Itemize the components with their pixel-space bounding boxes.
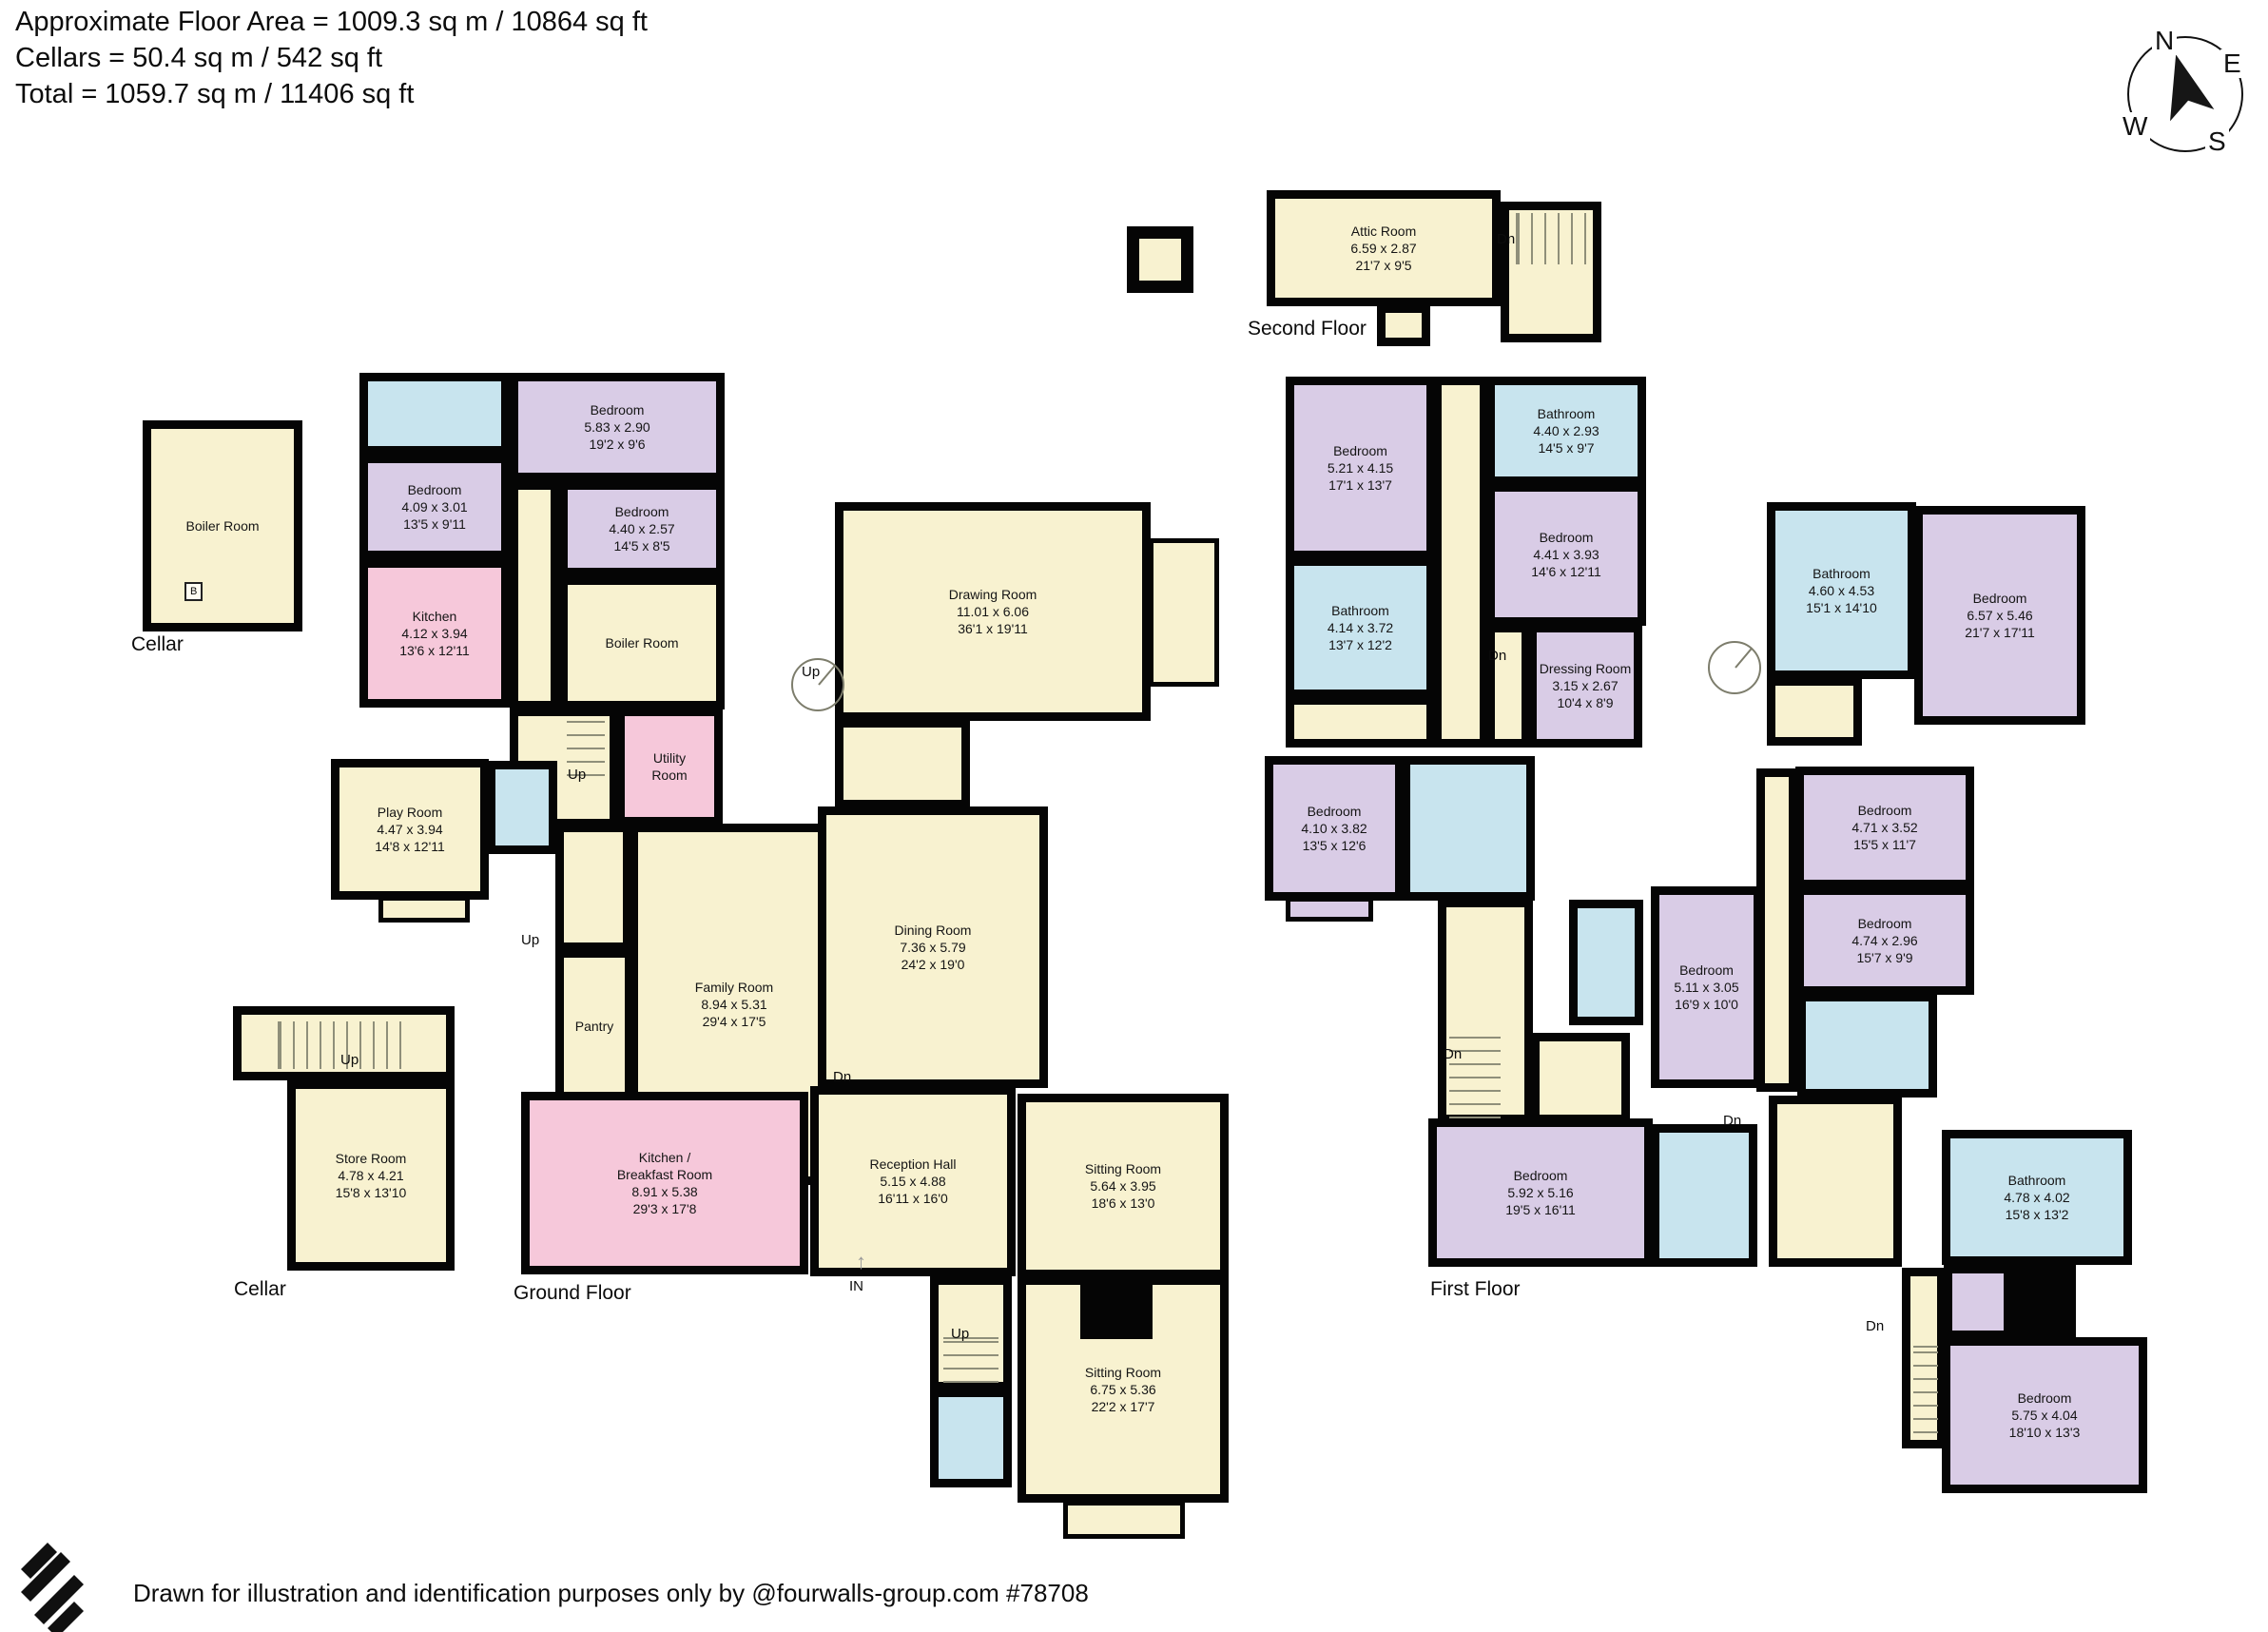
- room-gf-wc-north: [487, 761, 557, 854]
- room-label-ff-bedroom-592: Bedroom5.92 x 5.1619'5 x 16'11: [1505, 1167, 1576, 1218]
- compass-rose: N E S W: [2123, 29, 2251, 164]
- room-label-cellar1-boiler-room: Boiler Room: [185, 517, 259, 534]
- room-gf-hall-west: [555, 824, 631, 951]
- chimney-block: [1080, 1276, 1153, 1339]
- stair-direction-label: Dn: [1497, 231, 1515, 247]
- room-gf-dining-room: Dining Room7.36 x 5.7924'2 x 19'0: [818, 806, 1048, 1088]
- entrance-arrow-icon: ↑: [856, 1250, 866, 1274]
- room-label-gf-reception-hall: Reception Hall5.15 x 4.8816'11 x 16'0: [869, 1156, 956, 1207]
- room-gf-bathroom-nw: [359, 373, 510, 455]
- room-gf-bay-play: [378, 896, 470, 923]
- room-label-gf-utility-room: UtilityRoom: [651, 749, 687, 784]
- room-label-gf-pantry: Pantry: [575, 1018, 613, 1035]
- room-gf-play-room: Play Room4.47 x 3.9414'8 x 12'11: [331, 759, 489, 900]
- room-gf-reception-hall: Reception Hall5.15 x 4.8816'11 x 16'0: [810, 1086, 1016, 1276]
- boiler-appliance-label: B: [184, 582, 203, 601]
- room-label-ff-bathroom-440: Bathroom4.40 x 2.9314'5 x 9'7: [1533, 405, 1599, 457]
- stair-direction-label: Up: [568, 767, 586, 783]
- room-ff-bedroom-471: Bedroom4.71 x 3.5215'5 x 11'7: [1795, 767, 1974, 888]
- room-ff-bedroom-410: Bedroom4.10 x 3.8213'5 x 12'6: [1265, 756, 1404, 901]
- room-label-ff-bedroom-521: Bedroom5.21 x 4.1517'1 x 13'7: [1328, 442, 1393, 494]
- total-floor-area-line: Approximate Floor Area = 1009.3 sq m / 1…: [15, 4, 648, 40]
- room-label-gf-sitting-room-564: Sitting Room5.64 x 3.9518'6 x 13'0: [1085, 1160, 1161, 1212]
- chimney-block: [2011, 1265, 2076, 1341]
- room-label-ff-bedroom-441: Bedroom4.41 x 3.9314'6 x 12'11: [1531, 529, 1601, 580]
- entrance-label: IN: [849, 1278, 863, 1294]
- room-cellar1-boiler-room: Boiler Room: [143, 420, 302, 631]
- room-gf-hall-center: [835, 719, 970, 808]
- room-sf-chimney-tab: [1377, 304, 1430, 346]
- stair-direction-label: Up: [802, 664, 820, 680]
- room-ff-bathroom-460: Bathroom4.60 x 4.5315'1 x 14'10: [1767, 502, 1916, 679]
- room-ff-ensuite-nw: [1402, 756, 1535, 901]
- room-label-cellar2-store-room: Store Room4.78 x 4.2115'8 x 13'10: [336, 1150, 407, 1201]
- total-area-line: Total = 1059.7 sq m / 11406 sq ft: [15, 76, 648, 112]
- room-label-gf-bedroom-440: Bedroom4.40 x 2.5714'5 x 8'5: [609, 503, 674, 554]
- room-ff-hall-center2: [1531, 1033, 1630, 1123]
- stair-direction-label: Up: [521, 932, 539, 948]
- room-label-ff-bedroom-474: Bedroom4.74 x 2.9615'7 x 9'9: [1851, 915, 1917, 966]
- room-label-ff-bedroom-575: Bedroom5.75 x 4.0418'10 x 13'3: [2009, 1389, 2081, 1441]
- room-gf-kitchen-breakfast-room: Kitchen /Breakfast Room8.91 x 5.3829'3 x…: [521, 1092, 808, 1274]
- stair-direction-label: Up: [951, 1326, 969, 1342]
- floor-caption-second-floor: Second Floor: [1248, 318, 1367, 340]
- room-ff-hall-strip: [1756, 768, 1797, 1092]
- room-ff-hall-se2: [1944, 1265, 2012, 1339]
- stair-direction-label: Up: [340, 1052, 359, 1068]
- room-label-gf-drawing-room: Drawing Room11.01 x 6.0636'1 x 19'11: [949, 586, 1037, 637]
- room-gf-hall-north: [510, 481, 559, 709]
- room-gf-bedroom-409: Bedroom4.09 x 3.0113'5 x 9'11: [359, 455, 510, 559]
- room-ff-dressing-room: Dressing Room3.15 x 2.6710'4 x 8'9: [1528, 624, 1642, 748]
- room-label-gf-boiler-room: Boiler Room: [605, 634, 678, 651]
- room-gf-bedroom-583: Bedroom5.83 x 2.9019'2 x 9'6: [510, 373, 725, 481]
- room-ff-bay-bedroom-410: [1286, 897, 1373, 922]
- room-gf-wc-south: [930, 1389, 1012, 1487]
- staircase-icon: [1516, 213, 1592, 264]
- spiral-staircase-icon: [1708, 641, 1761, 694]
- room-label-gf-dining-room: Dining Room7.36 x 5.7924'2 x 19'0: [895, 922, 972, 973]
- staircase-icon: [1913, 1346, 1938, 1433]
- room-sf-attic-room: Attic Room6.59 x 2.8721'7 x 9'5: [1267, 190, 1501, 306]
- room-label-sf-attic-room: Attic Room6.59 x 2.8721'7 x 9'5: [1350, 223, 1416, 274]
- floor-caption-cellar: Cellar: [131, 633, 184, 656]
- room-label-ff-bedroom-471: Bedroom4.71 x 3.5215'5 x 11'7: [1851, 802, 1917, 853]
- room-label-gf-play-room: Play Room4.47 x 3.9414'8 x 12'11: [375, 804, 445, 855]
- room-gf-utility-room: UtilityRoom: [616, 708, 723, 826]
- compass-west-label: W: [2120, 112, 2150, 141]
- room-ff-hall-nw: [1286, 696, 1435, 748]
- compass-east-label: E: [2220, 49, 2244, 78]
- room-label-ff-bathroom-478: Bathroom4.78 x 4.0215'8 x 13'2: [2004, 1172, 2069, 1223]
- staircase-icon: [943, 1337, 998, 1383]
- room-label-gf-sitting-room-675: Sitting Room6.75 x 5.3622'2 x 17'7: [1085, 1364, 1161, 1415]
- stair-direction-label: Dn: [1488, 648, 1506, 664]
- room-ff-bedroom-657: Bedroom6.57 x 5.4621'7 x 17'11: [1914, 506, 2085, 725]
- room-gf-bay-sitting: [1063, 1501, 1185, 1539]
- floor-caption-first-floor: First Floor: [1430, 1278, 1521, 1301]
- stair-direction-label: Dn: [1866, 1318, 1884, 1334]
- stair-direction-label: Dn: [1723, 1113, 1741, 1129]
- room-gf-drawing-room: Drawing Room11.01 x 6.0636'1 x 19'11: [835, 502, 1151, 721]
- room-ff-landing-se: [1769, 1096, 1902, 1267]
- floor-caption-ground-floor: Ground Floor: [514, 1282, 631, 1305]
- room-ff-bathroom-mid: [1569, 900, 1643, 1025]
- floor-plan: Approximate Floor Area = 1009.3 sq m / 1…: [0, 0, 2268, 1632]
- room-label-ff-bathroom-414: Bathroom4.14 x 3.7213'7 x 12'2: [1328, 602, 1393, 653]
- room-ff-bedroom-592: Bedroom5.92 x 5.1619'5 x 16'11: [1428, 1118, 1653, 1267]
- room-ff-bedroom-474: Bedroom4.74 x 2.9615'7 x 9'9: [1795, 886, 1974, 995]
- room-gf-bedroom-440: Bedroom4.40 x 2.5714'5 x 8'5: [559, 481, 725, 576]
- room-label-ff-bathroom-460: Bathroom4.60 x 4.5315'1 x 14'10: [1806, 565, 1877, 616]
- room-sf-tower: [1127, 226, 1193, 293]
- room-gf-bay-drawing: [1149, 538, 1219, 687]
- room-label-gf-kitchen-breakfast-room: Kitchen /Breakfast Room8.91 x 5.3829'3 x…: [617, 1149, 712, 1217]
- room-gf-sitting-room-564: Sitting Room5.64 x 3.9518'6 x 13'0: [1018, 1094, 1229, 1278]
- room-ff-bathroom-478: Bathroom4.78 x 4.0215'8 x 13'2: [1942, 1130, 2132, 1265]
- room-ff-bathroom-440: Bathroom4.40 x 2.9314'5 x 9'7: [1486, 377, 1646, 485]
- room-ff-bedroom-575: Bedroom5.75 x 4.0418'10 x 13'3: [1942, 1337, 2147, 1493]
- cellars-area-line: Cellars = 50.4 sq m / 542 sq ft: [15, 40, 648, 76]
- room-ff-bathroom-414: Bathroom4.14 x 3.7213'7 x 12'2: [1286, 557, 1435, 698]
- stair-direction-label: Dn: [833, 1069, 851, 1085]
- room-gf-pantry: Pantry: [555, 949, 633, 1103]
- room-label-gf-bedroom-409: Bedroom4.09 x 3.0113'5 x 9'11: [401, 481, 467, 533]
- footer-credit: Drawn for illustration and identificatio…: [133, 1579, 1089, 1608]
- room-label-ff-bedroom-657: Bedroom6.57 x 5.4621'7 x 17'11: [1965, 590, 2035, 641]
- room-label-gf-kitchen: Kitchen4.12 x 3.9413'6 x 12'11: [399, 608, 470, 659]
- room-label-gf-family-room: Family Room8.94 x 5.3129'4 x 17'5: [695, 979, 773, 1030]
- room-gf-boiler-room: Boiler Room: [559, 576, 725, 709]
- room-gf-kitchen: Kitchen4.12 x 3.9413'6 x 12'11: [359, 559, 510, 708]
- floor-area-summary: Approximate Floor Area = 1009.3 sq m / 1…: [15, 4, 648, 112]
- room-ff-bedroom-511: Bedroom5.11 x 3.0516'9 x 10'0: [1651, 886, 1762, 1088]
- room-ff-landing-north: [1433, 377, 1488, 748]
- fourwalls-logo-icon: [15, 1537, 89, 1632]
- room-ff-bedroom-521: Bedroom5.21 x 4.1517'1 x 13'7: [1286, 377, 1435, 559]
- room-cellar2-store-room: Store Room4.78 x 4.2115'8 x 13'10: [287, 1080, 455, 1271]
- room-ff-bathroom-s: [1651, 1124, 1757, 1267]
- room-ff-hall-east: [1767, 677, 1862, 746]
- room-ff-bedroom-441: Bedroom4.41 x 3.9314'6 x 12'11: [1486, 483, 1646, 626]
- room-label-ff-dressing-room: Dressing Room3.15 x 2.6710'4 x 8'9: [1540, 660, 1631, 711]
- room-ff-bathroom-se: [1797, 993, 1937, 1098]
- floor-caption-cellar: Cellar: [234, 1278, 286, 1301]
- room-ff-stair-mid: [1486, 624, 1530, 748]
- room-label-ff-bedroom-511: Bedroom5.11 x 3.0516'9 x 10'0: [1674, 962, 1738, 1013]
- compass-north-label: N: [2152, 27, 2177, 55]
- stair-direction-label: Dn: [1444, 1046, 1462, 1062]
- compass-south-label: S: [2205, 127, 2229, 156]
- room-label-ff-bedroom-410: Bedroom4.10 x 3.8213'5 x 12'6: [1301, 803, 1367, 854]
- room-label-gf-bedroom-583: Bedroom5.83 x 2.9019'2 x 9'6: [584, 401, 649, 453]
